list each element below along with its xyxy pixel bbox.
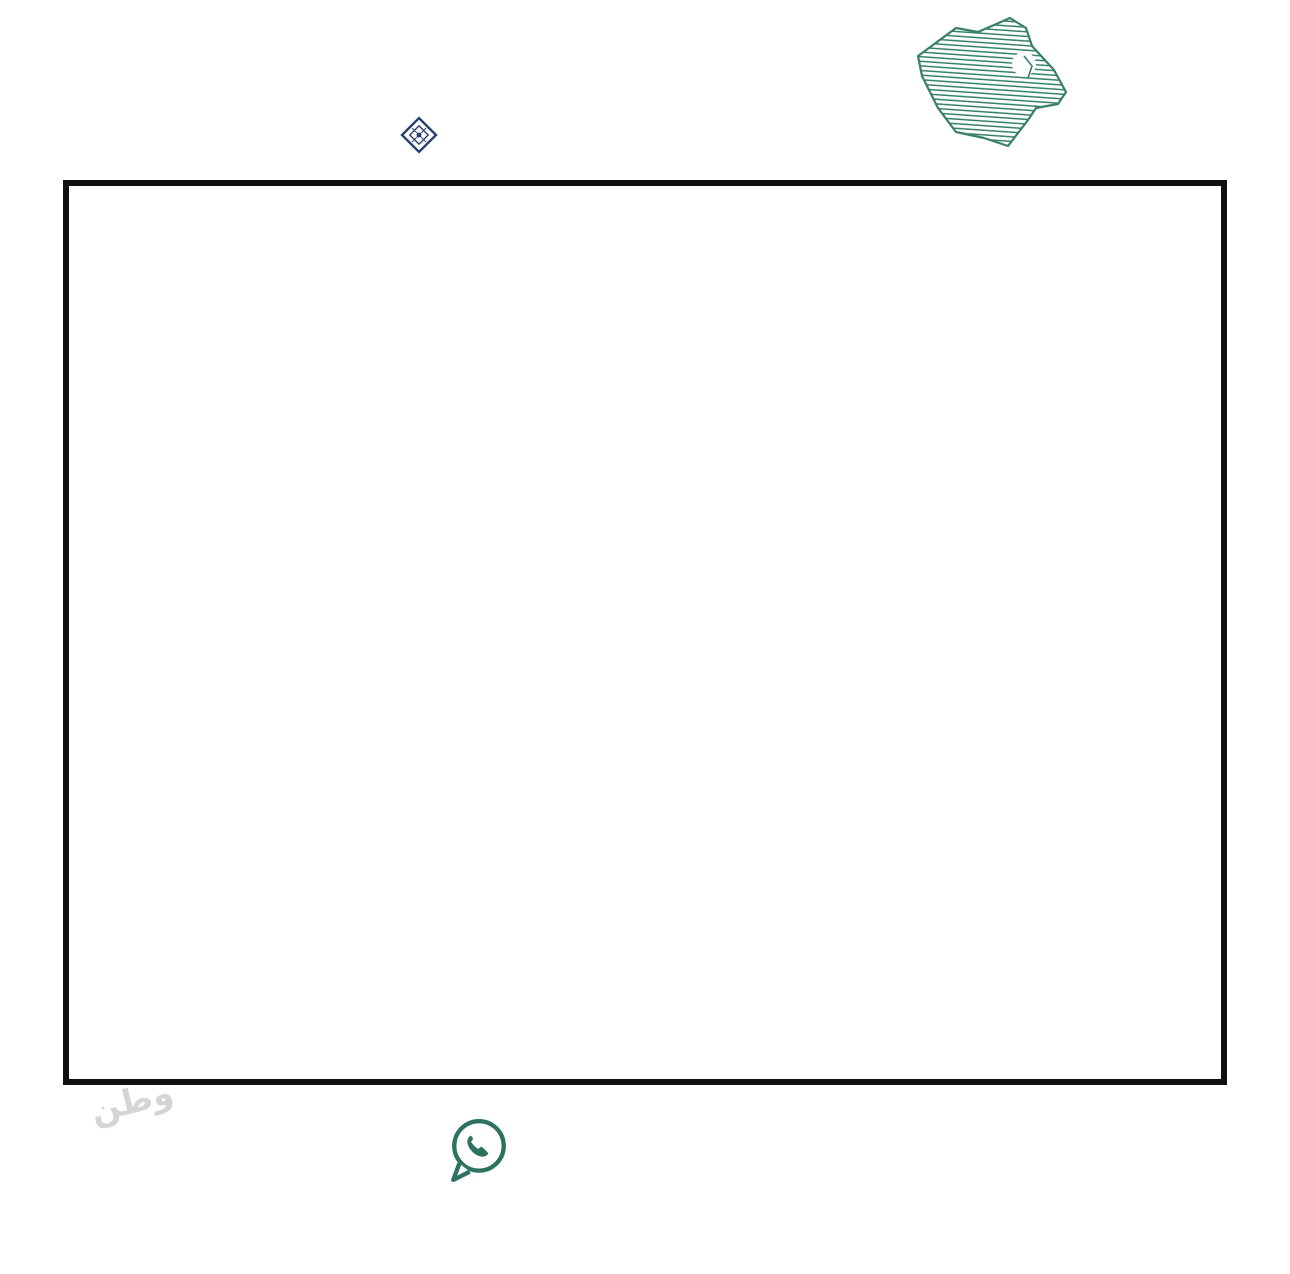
authority-diamond-icon [400, 116, 438, 154]
brand-divider-bar [890, 18, 895, 158]
saudi-map-logo-icon [904, 12, 1076, 160]
footer-divider [430, 1188, 870, 1193]
snapchat-qr-code[interactable] [1062, 1095, 1228, 1262]
subdivision-map [69, 186, 1221, 1079]
flyer-page: وطن [0, 0, 1290, 1274]
authority-block [300, 118, 396, 120]
whatsapp-icon [446, 1116, 512, 1184]
subdivision-map-frame [63, 180, 1227, 1085]
website-qr-code[interactable] [70, 1093, 235, 1263]
